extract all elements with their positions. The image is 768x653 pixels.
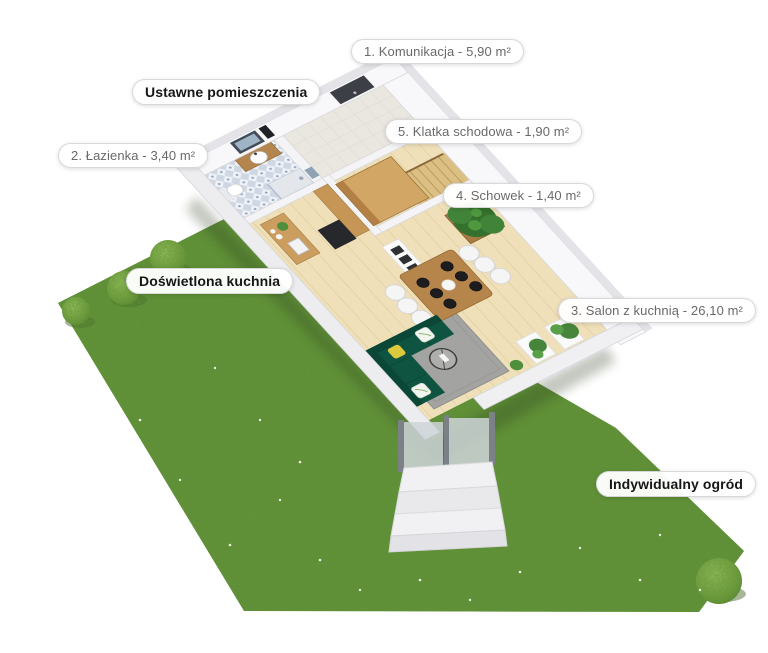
label-klatka-schodowa: 5. Klatka schodowa - 1,90 m² (385, 119, 582, 144)
door-glass (404, 422, 443, 470)
label-indywidualny-ogrod: Indywidualny ogród (596, 471, 756, 497)
label-ustawne-pomieszczenia: Ustawne pomieszczenia (132, 79, 320, 105)
label-lazienka: 2. Łazienka - 3,40 m² (58, 143, 208, 168)
floorplan-visualization: 1. Komunikacja - 5,90 m² Ustawne pomiesz… (0, 0, 768, 653)
label-doswietlona-kuchnia: Doświetlona kuchnia (126, 268, 293, 294)
label-schowek: 4. Schowek - 1,40 m² (443, 183, 594, 208)
door-frame (398, 420, 404, 472)
entrance-steps (389, 462, 507, 552)
label-komunikacja: 1. Komunikacja - 5,90 m² (351, 39, 524, 64)
door-frame (444, 415, 449, 468)
garden-entrance (389, 412, 507, 552)
label-salon-z-kuchnia: 3. Salon z kuchnią - 26,10 m² (558, 298, 756, 323)
door-frame (489, 412, 495, 465)
floorplan-scene (0, 0, 768, 653)
door-glass (449, 418, 489, 468)
